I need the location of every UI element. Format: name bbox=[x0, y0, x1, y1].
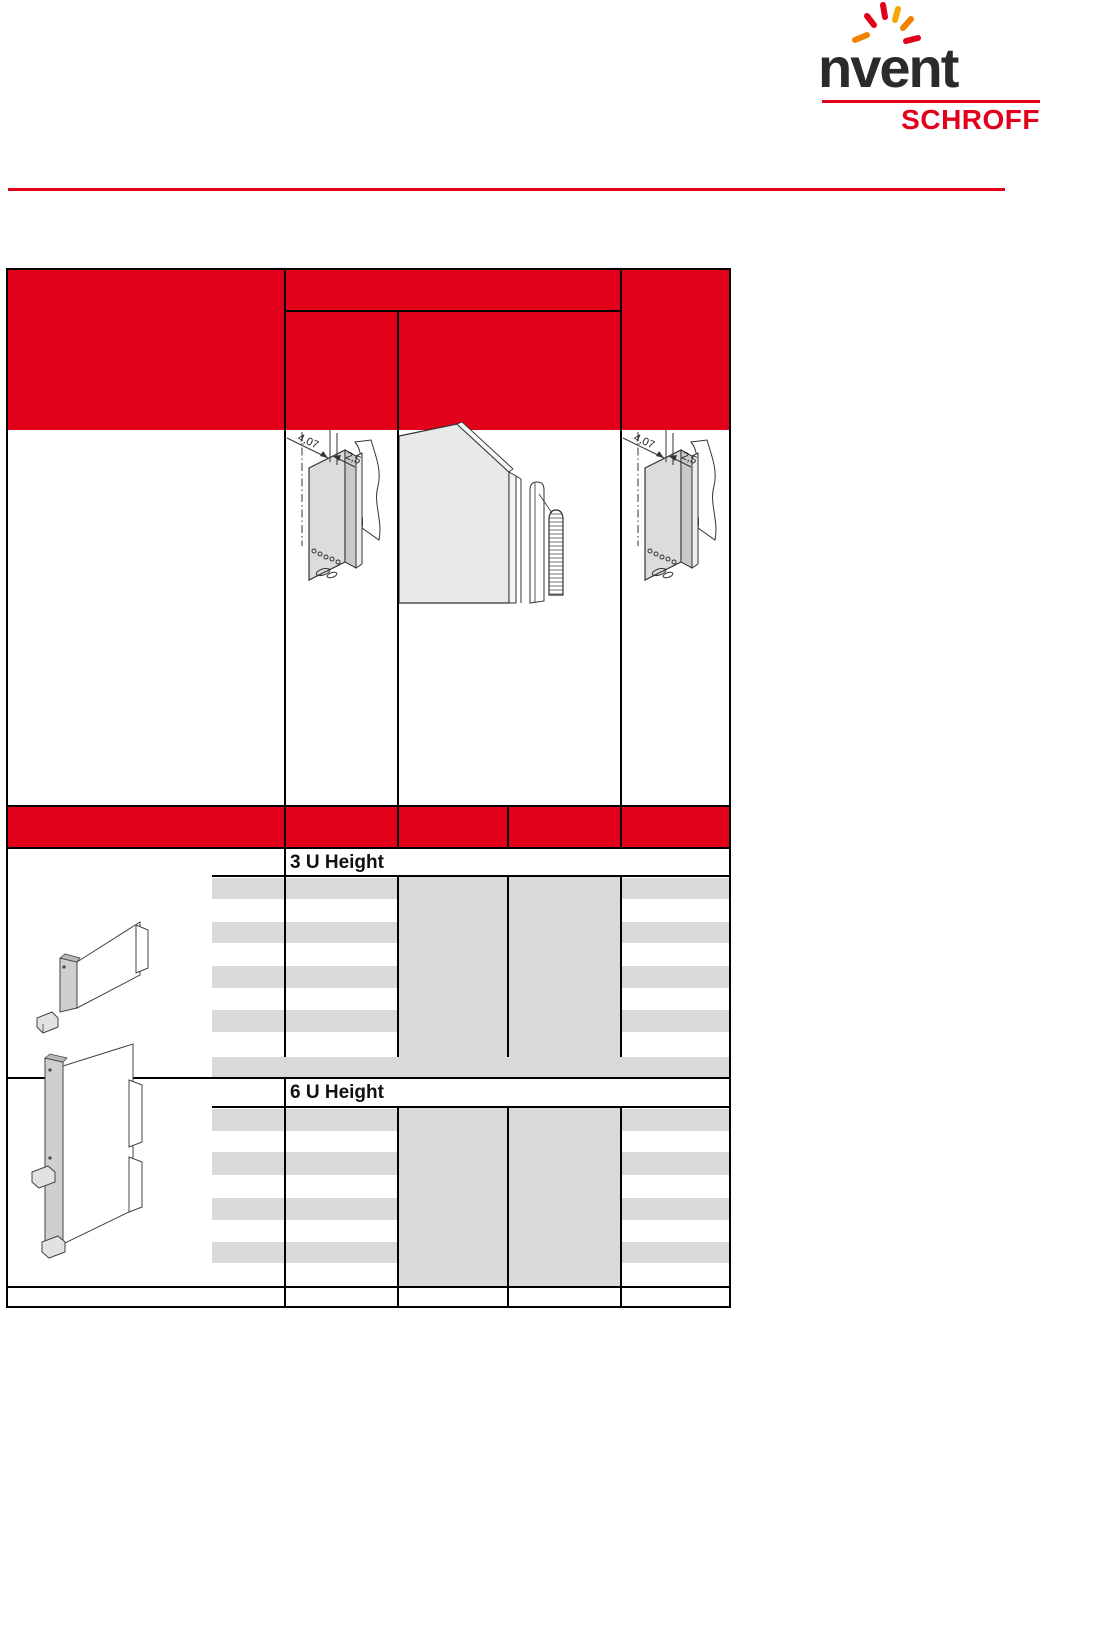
column-divider bbox=[507, 1107, 509, 1287]
table-border-top bbox=[6, 268, 731, 270]
row-divider bbox=[6, 805, 731, 807]
column-divider bbox=[507, 877, 509, 1057]
column-divider bbox=[620, 1288, 622, 1308]
empty-row-stripe bbox=[212, 1152, 729, 1175]
pcb-card-6u-drawing bbox=[30, 1030, 160, 1275]
empty-row-stripe bbox=[212, 878, 729, 899]
column-divider bbox=[284, 1077, 286, 1308]
nvent-logo: nvent bbox=[818, 40, 957, 96]
section-label-3u: 3 U Height bbox=[290, 850, 384, 876]
column-divider bbox=[507, 1288, 509, 1308]
catalog-page: nvent SCHROFF 3 U Height 6 U Height bbox=[0, 0, 1100, 1651]
empty-row-stripe-wide bbox=[212, 1057, 729, 1078]
empty-row-stripe bbox=[212, 922, 729, 943]
schroff-wordmark: SCHROFF bbox=[822, 104, 1040, 136]
empty-row-stripe bbox=[212, 1109, 729, 1131]
row-divider bbox=[212, 1106, 731, 1108]
section-label-6u: 6 U Height bbox=[290, 1080, 384, 1106]
column-divider bbox=[397, 877, 399, 1057]
empty-row-stripe bbox=[212, 1198, 729, 1220]
empty-row-stripe bbox=[212, 1242, 729, 1263]
header-subdivider bbox=[284, 310, 622, 312]
logo-underline bbox=[822, 100, 1040, 103]
row-divider bbox=[212, 875, 731, 877]
column-divider bbox=[620, 1107, 622, 1287]
column-divider bbox=[397, 1288, 399, 1308]
panel-gasket-drawing bbox=[399, 420, 620, 605]
column-divider bbox=[397, 1107, 399, 1287]
table-border-left bbox=[6, 269, 8, 1308]
table-header-band bbox=[6, 269, 731, 430]
pcb-card-3u-drawing bbox=[30, 860, 155, 1040]
header-rule bbox=[8, 188, 1005, 191]
panel-drawing-small: 4,07 2,5 bbox=[285, 424, 397, 606]
empty-row-stripe bbox=[212, 966, 729, 988]
empty-row-stripe bbox=[212, 1010, 729, 1032]
column-divider bbox=[620, 877, 622, 1057]
column-divider bbox=[284, 269, 286, 1057]
table-border-bottom bbox=[6, 1306, 731, 1308]
column-divider bbox=[507, 806, 509, 848]
row-divider bbox=[6, 847, 731, 849]
table-subheader-band bbox=[6, 807, 731, 848]
row-divider bbox=[6, 1286, 731, 1288]
panel-drawing-small: 4,07 2,5 bbox=[621, 424, 730, 606]
